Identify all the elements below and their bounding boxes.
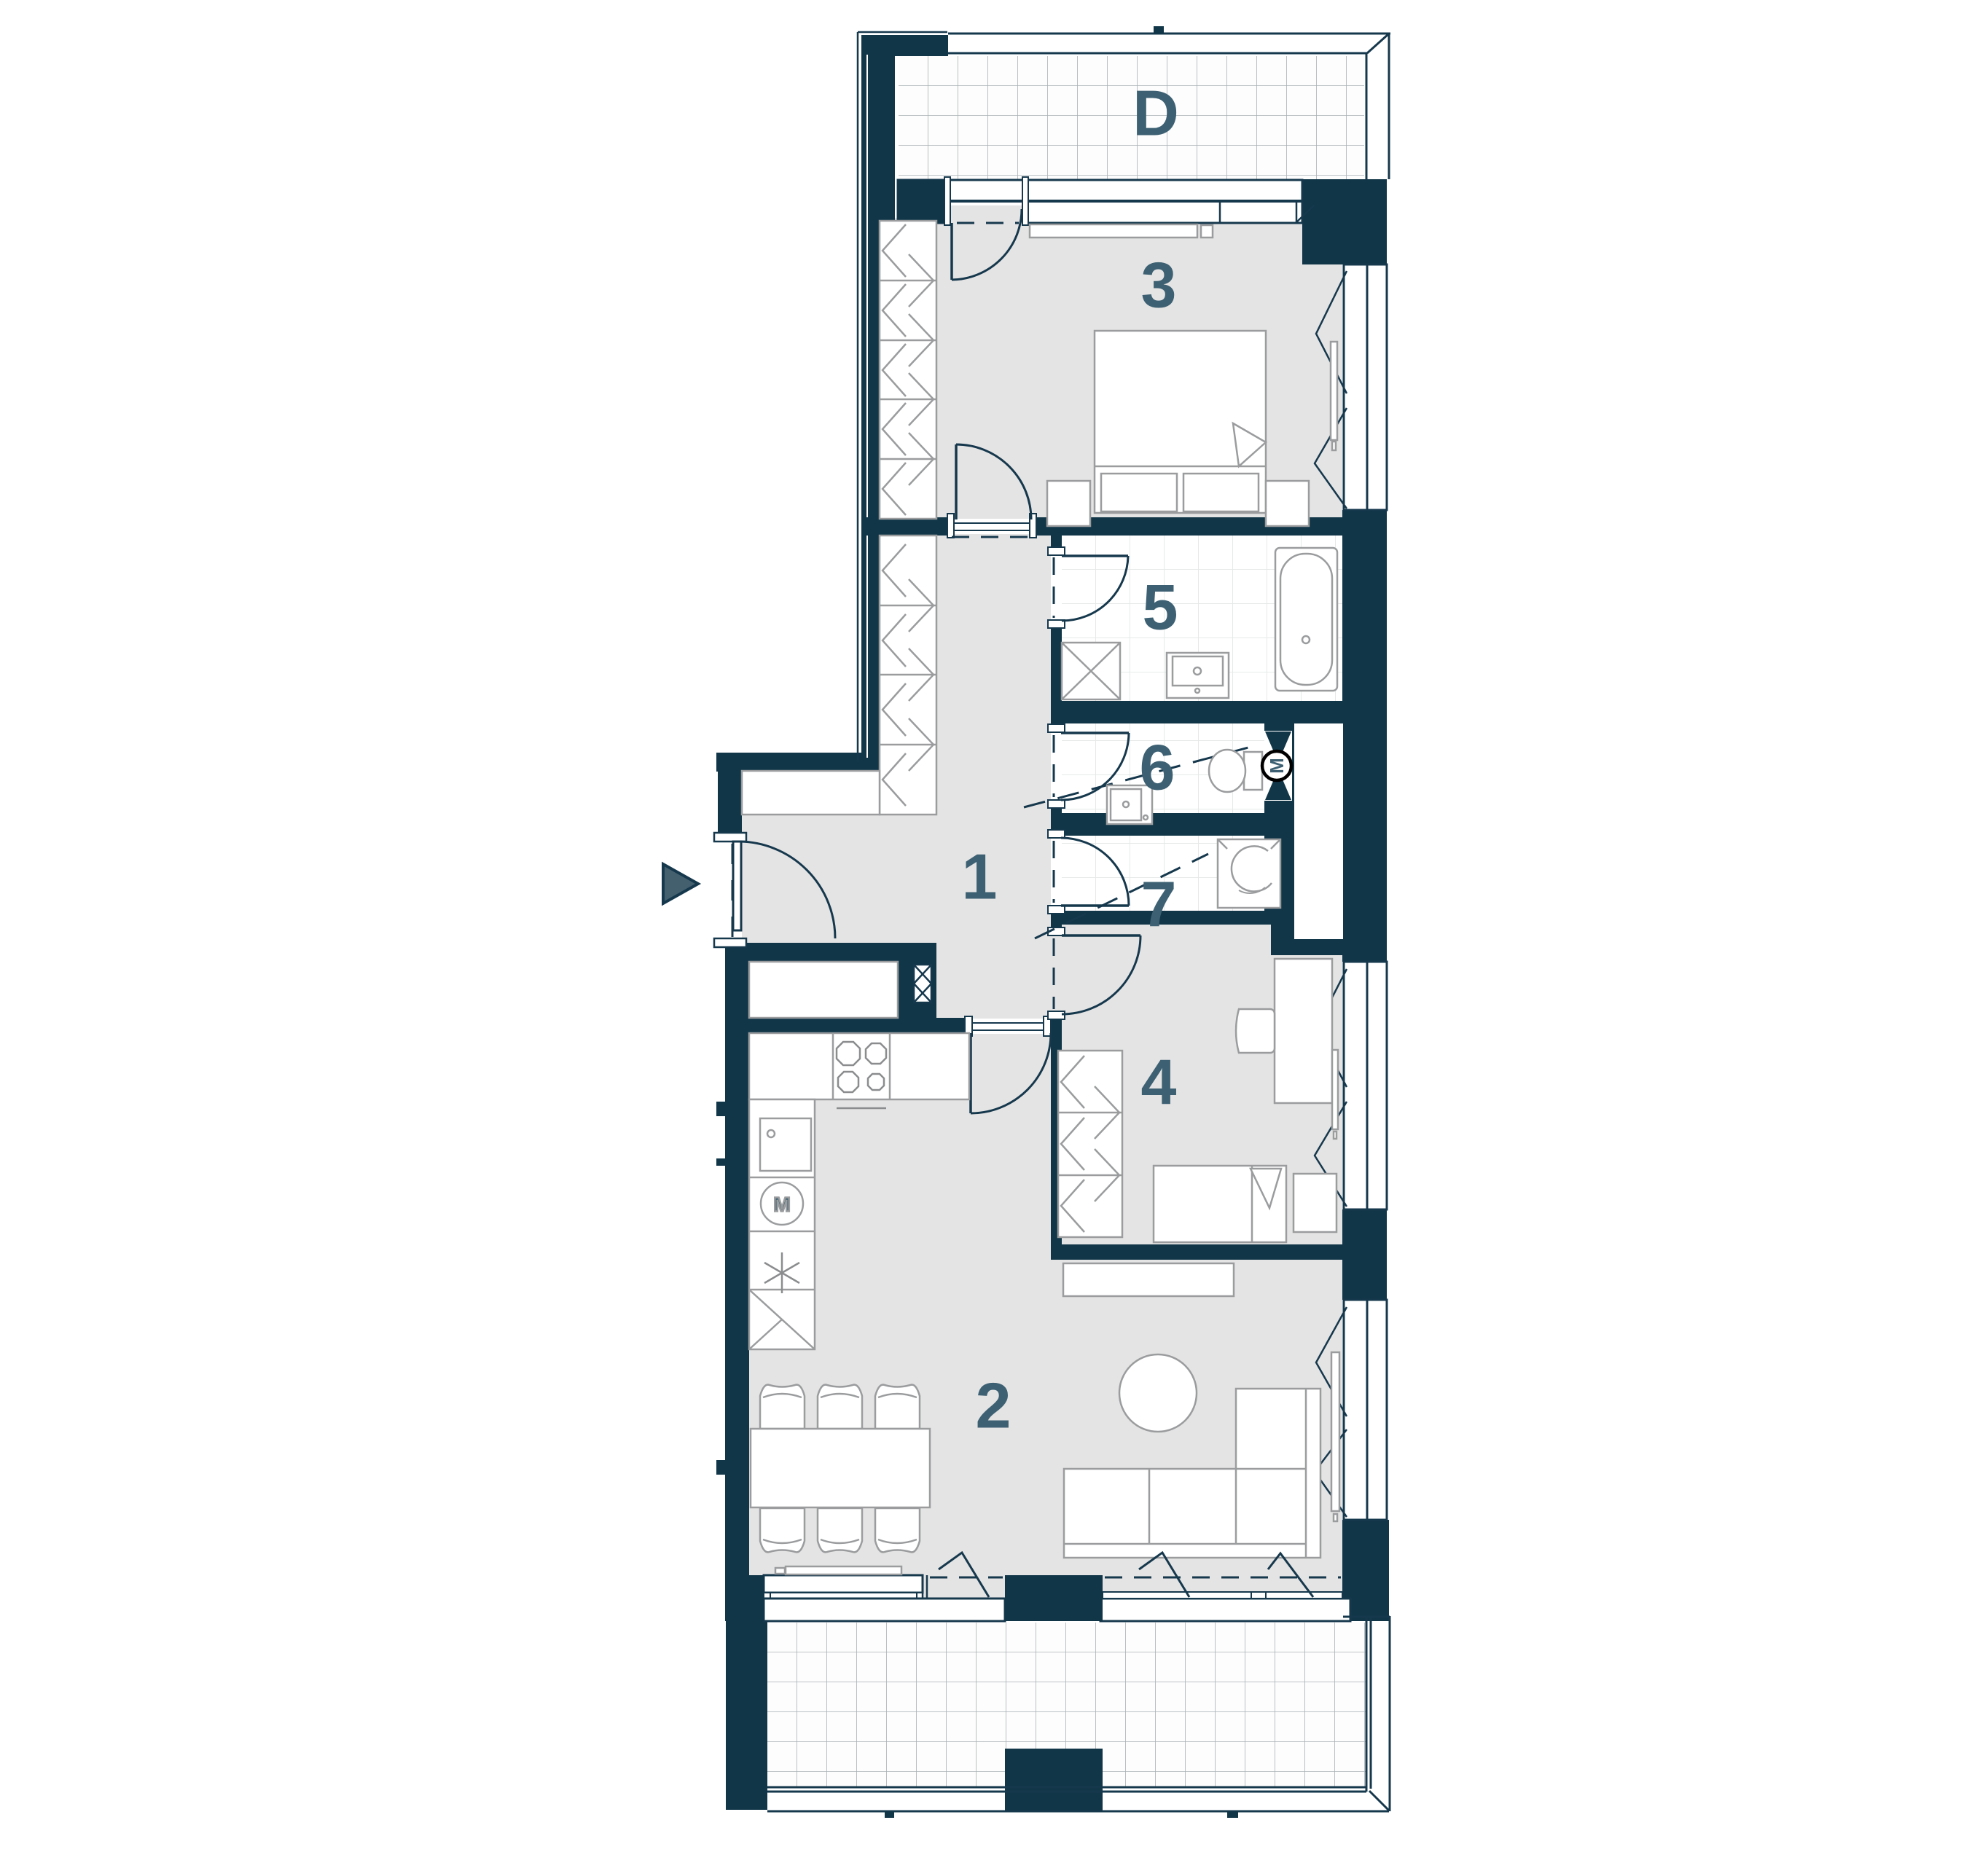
svg-text:M: M <box>1266 758 1288 774</box>
svg-text:1: 1 <box>962 841 998 913</box>
svg-text:4: 4 <box>1141 1046 1177 1118</box>
svg-text:M: M <box>773 1193 790 1216</box>
svg-text:2: 2 <box>976 1370 1011 1442</box>
svg-text:6: 6 <box>1140 731 1175 804</box>
svg-text:D: D <box>1132 77 1179 149</box>
svg-text:7: 7 <box>1141 868 1177 941</box>
svg-text:5: 5 <box>1143 571 1178 643</box>
svg-text:3: 3 <box>1141 249 1177 321</box>
